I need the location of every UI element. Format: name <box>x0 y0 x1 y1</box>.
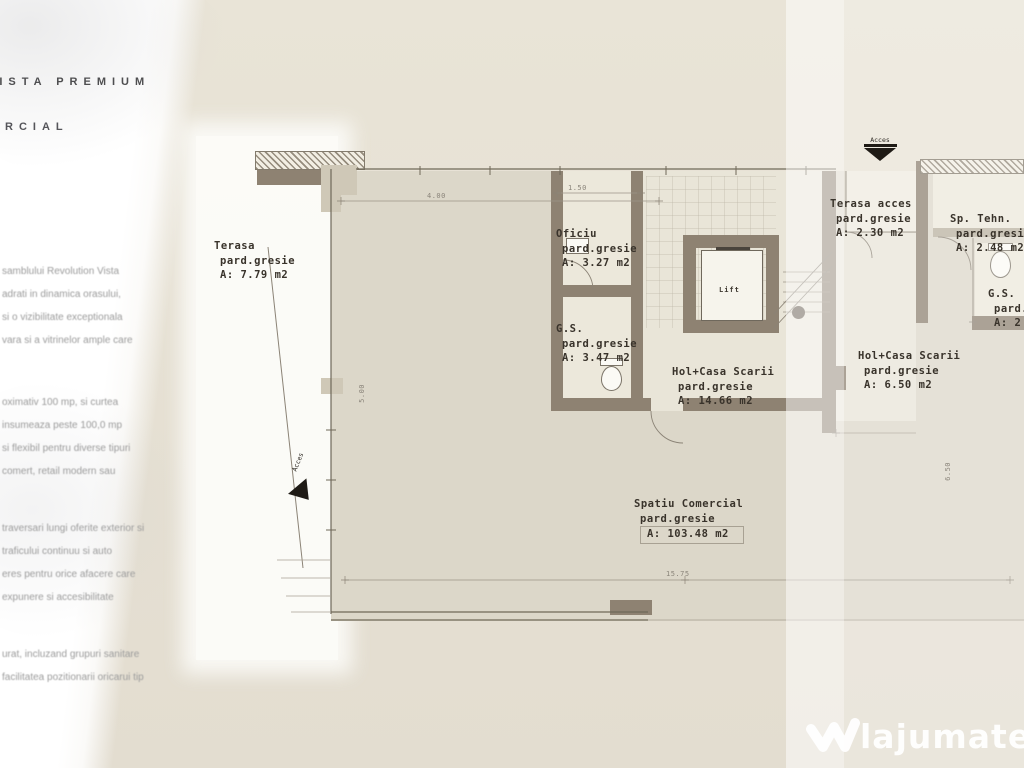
room-label-hol-650: Hol+Casa Scariipard.gresieA: 6.50 m2 <box>858 320 960 422</box>
dimension-bottom: 15.75 <box>666 570 690 578</box>
access-top-arrow <box>864 144 897 147</box>
floorplan-photo: VISTA PREMIUM COMERCIAL samblului Revolu… <box>0 0 1024 768</box>
dimension-left: 5.00 <box>358 384 366 403</box>
stair-column-dot <box>792 306 805 319</box>
lift-label: Lift <box>719 286 740 294</box>
dimension-right: 6.50 <box>944 462 952 481</box>
room-label-terasa: Terasapard.gresieA: 7.79 m2 <box>214 210 295 312</box>
dimension-oficiu: 1.50 <box>568 184 587 192</box>
room-label-oficiu: Oficiupard.gresieA: 3.27 m2 <box>556 198 637 300</box>
room-label-spatiu-comercial: Spatiu Comercialpard.gresieA: 103.48 m2 <box>634 468 744 573</box>
lajumate-logo-icon <box>806 716 860 758</box>
watermark-brand: lajumate <box>860 717 1024 757</box>
room-label-gs-left: G.S.pard.gresieA: 3.47 m2 <box>556 293 637 395</box>
access-top-label: Acces <box>860 136 900 144</box>
room-label-hol-casa-scarii: Hol+Casa Scariipard.gresieA: 14.66 m2 <box>672 336 774 438</box>
room-label-terasa-acces: Terasa accespard.gresieA: 2.30 m2 <box>830 168 912 270</box>
watermark: lajumate.ro <box>806 716 1024 758</box>
access-top-arrow-icon <box>864 148 896 161</box>
lift-door <box>716 247 750 250</box>
room-label-gs-right: G.S.pard.gresieA: 2 <box>988 258 1024 360</box>
dimension-top: 4.00 <box>427 192 446 200</box>
